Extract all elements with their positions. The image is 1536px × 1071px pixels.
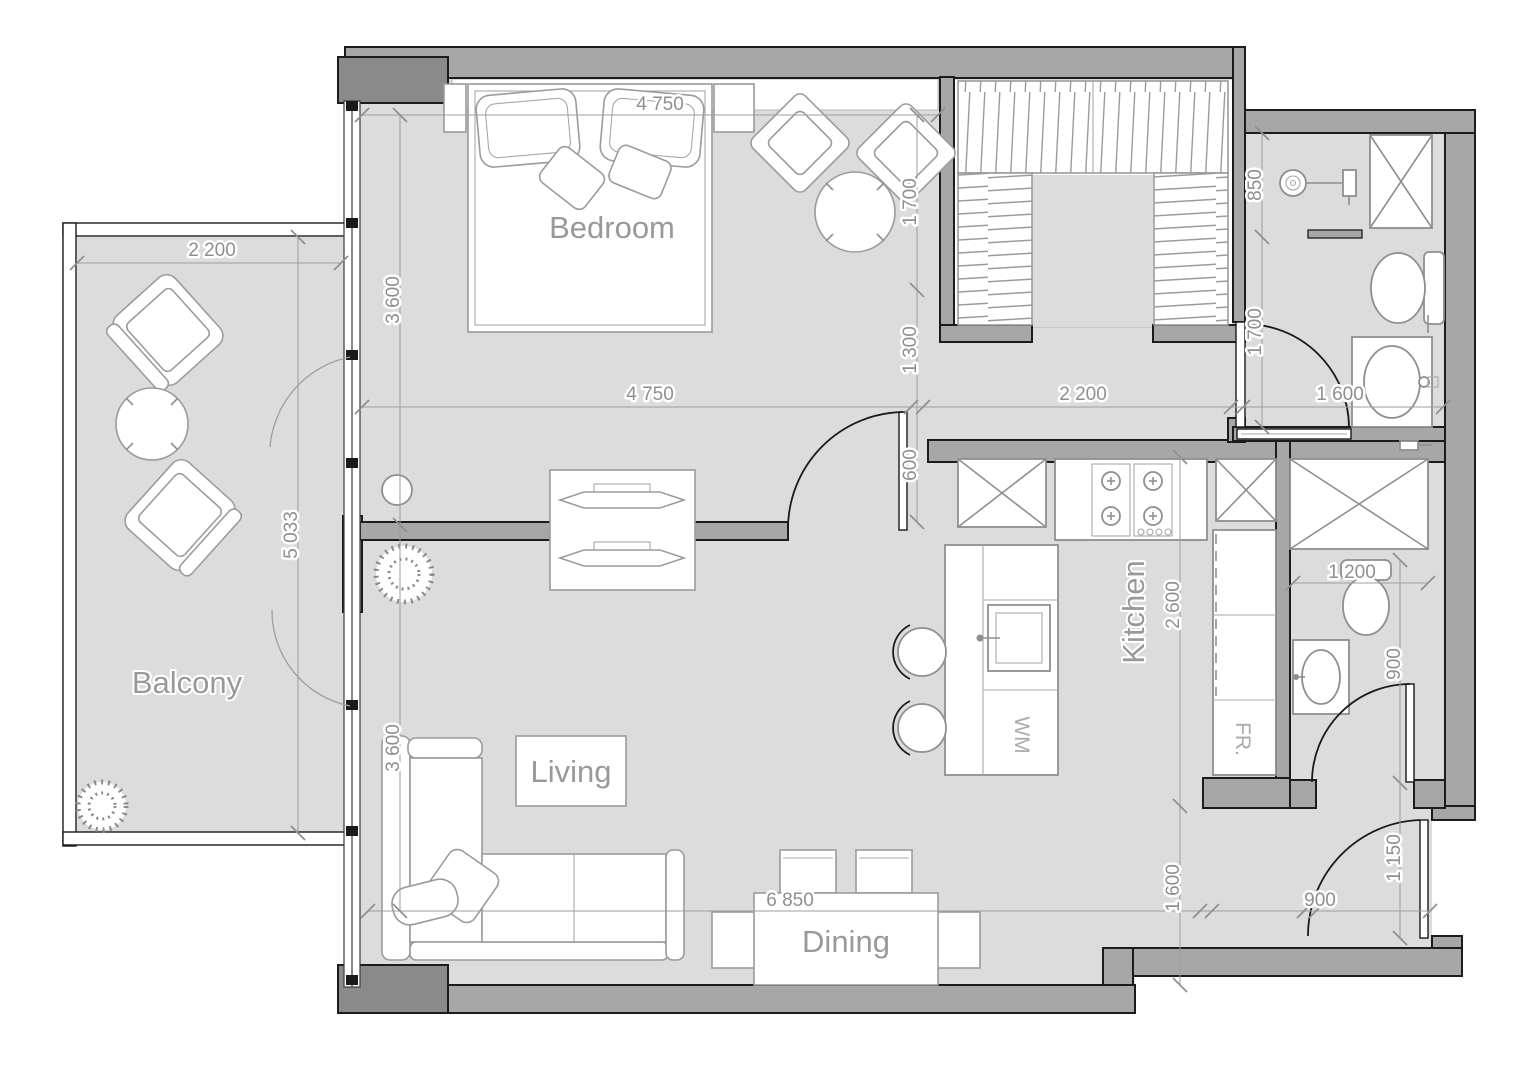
cooktop bbox=[1055, 459, 1207, 540]
vanity-1 bbox=[1352, 337, 1438, 427]
cabinet-x-1 bbox=[958, 459, 1046, 527]
dim-balcony-width: 2 200 bbox=[188, 240, 236, 261]
wall-closet-left bbox=[940, 77, 954, 332]
wall-wc-bottom-left bbox=[1290, 780, 1316, 808]
dim-bedroom-depth: 3 600 bbox=[383, 276, 404, 324]
kitchen-island: WM bbox=[945, 545, 1058, 775]
bedroom-label: Bedroom bbox=[549, 210, 675, 245]
wall-right bbox=[1445, 133, 1475, 808]
closet-notch-floor bbox=[1032, 175, 1153, 327]
wall-closet-right bbox=[1233, 47, 1245, 322]
dim-bedroom-width: 4 750 bbox=[626, 384, 674, 405]
wc-door-leaf bbox=[1406, 684, 1414, 782]
dim-balcony-length: 5 033 bbox=[281, 511, 302, 559]
dim-bath-length: 1 700 bbox=[1245, 308, 1266, 356]
balcony-label: Balcony bbox=[132, 665, 243, 700]
plant-living bbox=[376, 546, 432, 602]
dim-corridor-a: 1 300 bbox=[900, 326, 921, 374]
dim-kitchen-lower: 1 600 bbox=[1163, 864, 1184, 912]
tv-console bbox=[550, 470, 695, 590]
dim-bedroom-sitting: 1 700 bbox=[900, 178, 921, 226]
toilet-1 bbox=[1371, 252, 1444, 324]
wall-top bbox=[345, 47, 1245, 78]
shower-box bbox=[1370, 135, 1432, 228]
dim-wc-depth: 900 bbox=[1384, 648, 1405, 680]
entrance-door-leaf bbox=[1420, 820, 1428, 938]
wall-kitchen-bottom bbox=[1203, 778, 1290, 808]
dim-kitchen-length: 2 600 bbox=[1163, 581, 1184, 629]
dim-bath-width: 1 600 bbox=[1316, 384, 1364, 405]
dining-chair-top-1 bbox=[780, 850, 836, 893]
wall-closet-bottom-right bbox=[1153, 325, 1245, 342]
dining-label: Dining bbox=[802, 924, 890, 959]
towel-hook-icon bbox=[1400, 441, 1418, 450]
wall-wc-bottom-right bbox=[1414, 780, 1445, 808]
washing-machine-label: WM bbox=[1010, 716, 1033, 753]
fridge-label: FR. bbox=[1231, 722, 1254, 756]
plant-balcony bbox=[78, 782, 126, 830]
dining-chair-left bbox=[712, 912, 756, 968]
living-label: Living bbox=[531, 754, 612, 789]
bathroom-door-leaf bbox=[1236, 322, 1245, 427]
dim-wc-width: 1 200 bbox=[1328, 562, 1376, 583]
kitchen-counter-column: FR. bbox=[1213, 530, 1276, 775]
wall-bottom bbox=[345, 985, 1135, 1013]
dim-entry-depth: 1 150 bbox=[1384, 834, 1405, 882]
dim-living-depth: 3 600 bbox=[383, 724, 404, 772]
bed bbox=[444, 84, 754, 332]
cabinet-x-large bbox=[1290, 459, 1428, 549]
column-top-left bbox=[338, 57, 448, 103]
wall-bath-top bbox=[1245, 110, 1475, 133]
dim-corridor-b: 600 bbox=[900, 449, 921, 481]
wall-wc-left bbox=[1276, 441, 1290, 808]
dim-total-width: 6 850 bbox=[766, 890, 814, 911]
dim-entry-width: 900 bbox=[1304, 890, 1336, 911]
dining-chair-right bbox=[936, 912, 980, 968]
dim-hall-width: 2 200 bbox=[1059, 384, 1107, 405]
floor-plan-page: WM FR. bbox=[0, 0, 1536, 1071]
island-sink bbox=[977, 605, 1051, 671]
dim-bedroom-width-top: 4 750 bbox=[636, 94, 684, 115]
dim-closet-depth: 850 bbox=[1245, 169, 1266, 201]
kitchen-label: Kitchen bbox=[1116, 560, 1151, 663]
dining-chair-top-2 bbox=[856, 850, 912, 893]
wc-sink bbox=[1293, 640, 1349, 714]
wall-closet-bottom-left bbox=[940, 325, 1032, 342]
wall-shower-stub bbox=[1308, 230, 1362, 238]
cabinet-x-2 bbox=[1216, 459, 1276, 521]
wall-light-icon bbox=[382, 475, 412, 505]
floor-plan-drawing: WM FR. bbox=[0, 0, 1536, 1071]
living-label-plate: Living bbox=[516, 736, 626, 806]
